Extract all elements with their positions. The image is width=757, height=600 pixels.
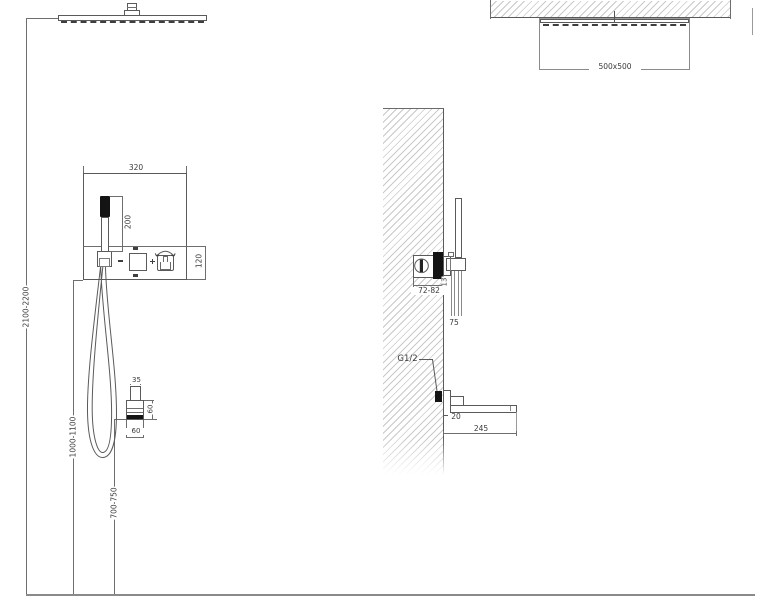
spout-front-neck <box>130 386 141 401</box>
hand-shower-holder-side <box>446 258 466 271</box>
dim-tick-mixer-height-top <box>73 280 83 281</box>
square-button-mark-bottom <box>133 274 138 277</box>
floor-line <box>26 594 755 596</box>
dim-tick-panel-left <box>83 166 84 173</box>
rain-head-side-stem <box>614 11 615 22</box>
ceiling-mount-cap-line <box>127 7 137 8</box>
dim-ext-strip-top <box>187 246 206 247</box>
dim-label-holder-length: 75 <box>444 319 464 327</box>
rain-head-front-nozzles <box>61 21 204 23</box>
rain-head-side-nozzles <box>543 24 686 26</box>
holder-side-inner-line <box>450 258 451 271</box>
dim-tick-hand-shower-top <box>110 196 123 197</box>
dim-label-total-height: 2100-2200 <box>22 286 30 329</box>
inlet-thread-label: G1/2 <box>394 355 421 364</box>
dim-label-strip: 120 <box>195 253 203 269</box>
dim-line-spout-b <box>126 437 144 438</box>
dim-label-spout-length: 245 <box>465 425 497 433</box>
dim-label-hand-shower: 200 <box>124 214 132 230</box>
dim-label-valve-depth: 72-82 <box>411 287 447 295</box>
dim-label-spout-drop: 20 <box>448 413 464 421</box>
valve-trim-dark <box>433 252 443 279</box>
hand-shower-handle-front <box>101 217 109 252</box>
dim-label-head-size: 500x500 <box>589 63 641 71</box>
ceiling-section <box>490 1 731 18</box>
hose-side-line3 <box>458 271 459 316</box>
dim-label-mixer-height: 1000-1100 <box>69 416 77 459</box>
spout-front-outlet <box>127 415 143 419</box>
dim-label-spout-bottom-width: 60 <box>126 428 146 435</box>
installation-drawing: 2100-2200 1000-1100 700-750 320 200 120 <box>0 0 757 600</box>
dim-label-spout-top-width: 35 <box>127 377 146 384</box>
hose-side-line2 <box>454 271 455 316</box>
square-button <box>129 253 147 271</box>
valve-body-side <box>413 255 434 278</box>
panel-mark-left <box>118 260 123 262</box>
hand-shower-wand-side <box>455 198 462 258</box>
wall-section-fade <box>382 438 444 479</box>
dim-label-spout-height: 700-750 <box>110 486 118 519</box>
frame-edge-right <box>752 8 753 35</box>
hose-loop-inner <box>92 267 111 453</box>
spout-front-band1 <box>127 408 143 409</box>
ceiling-mount-flange <box>124 10 140 16</box>
diverter-spout-cup <box>160 262 171 270</box>
dim-tick-panel-right <box>186 166 187 173</box>
dim-label-panel-width: 320 <box>120 164 152 172</box>
dim-ext-strip-bottom <box>187 279 206 280</box>
ceiling-edge-left <box>490 0 491 19</box>
dim-label-spout-side-height: 60 <box>148 404 155 415</box>
dim-tick-spout-length-r <box>516 431 517 436</box>
valve-trim-step <box>448 252 454 257</box>
inlet-fitting <box>435 391 442 402</box>
spout-front-band2 <box>127 412 143 413</box>
dim-tick-spout-length-l <box>443 431 444 436</box>
dim-line-strip <box>205 246 206 280</box>
hand-shower-holder-inner <box>99 258 110 267</box>
dim-tick-hand-shower-bottom <box>110 251 123 252</box>
square-button-mark-top <box>133 247 138 250</box>
hand-shower-head-front <box>100 196 110 217</box>
spout-side-tip-detail <box>510 406 511 411</box>
ceiling-edge-right <box>730 0 731 19</box>
hose-side-line1 <box>451 271 452 316</box>
head-box-right <box>689 18 690 70</box>
dim-label-trim-thickness: 13 <box>442 277 449 288</box>
dim-tick-total-height-top <box>26 18 58 19</box>
hose-side-line4 <box>461 271 462 316</box>
dim-line-spout-length <box>443 433 517 434</box>
panel-mark-mid-v <box>152 259 153 264</box>
hose-loop-outer <box>87 267 116 458</box>
head-box-left <box>539 18 540 70</box>
